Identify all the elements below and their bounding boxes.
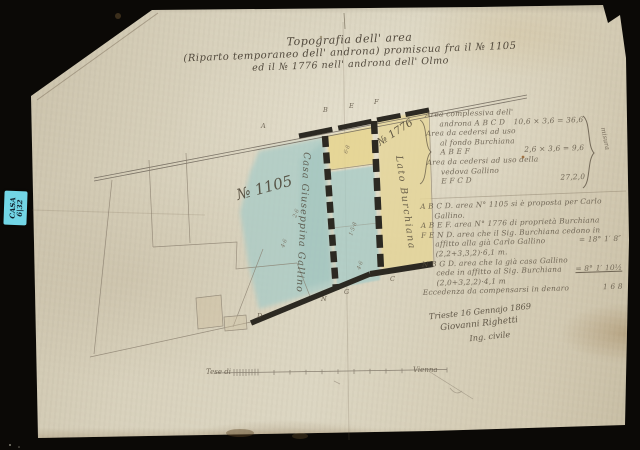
archive-sticker: CASA 6|32 [3,191,27,226]
archive-sticker-text: CASA 6|32 [8,192,23,224]
annotation-block-computation: A B C D. area N° 1105 si è proposta per … [420,196,623,298]
annotation-block-areas: Area complessiva dell' androna A B C D 1… [425,105,585,187]
photo-backdrop: № 1105 № 1776 Casa Giuseppina Gallino La… [0,0,640,450]
